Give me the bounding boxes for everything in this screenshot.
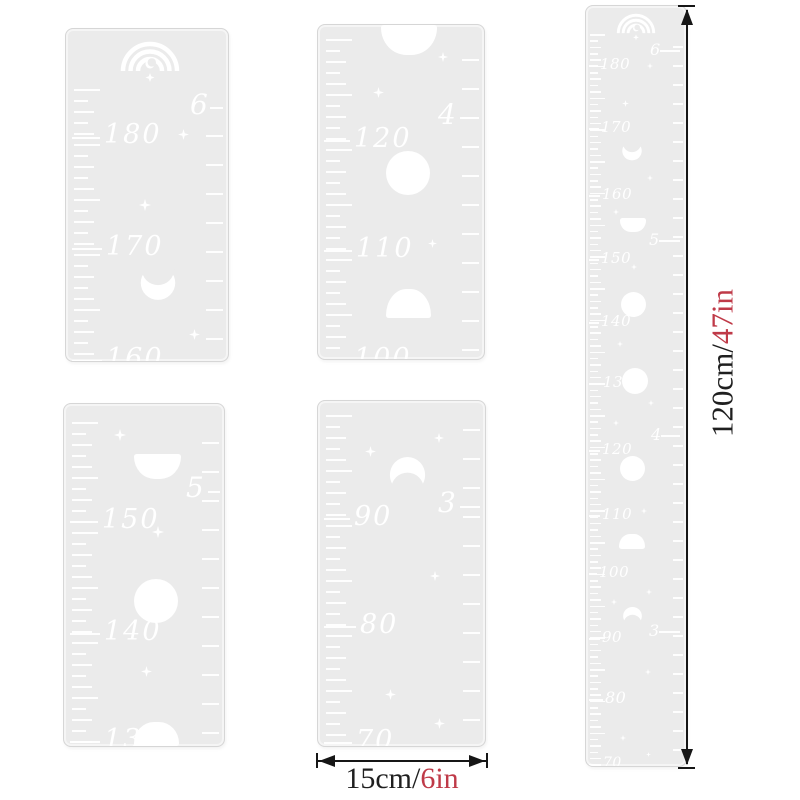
tick-mark	[202, 587, 219, 589]
tick-mark	[74, 309, 100, 311]
tick-mark	[206, 193, 223, 195]
tick-mark	[74, 199, 100, 201]
tick-mark	[590, 263, 598, 265]
cm-label: 180	[104, 121, 162, 148]
tick-mark	[74, 144, 100, 146]
tick-mark	[202, 442, 219, 444]
ruler-mark-line	[70, 521, 98, 523]
tick-mark	[673, 217, 683, 219]
tick-mark	[326, 459, 346, 461]
tick-mark	[590, 586, 601, 588]
tick-mark	[462, 233, 479, 235]
tick-mark	[326, 734, 346, 736]
tick-mark	[590, 218, 601, 220]
tick-mark	[590, 733, 605, 735]
tick-mark	[673, 502, 683, 504]
tick-mark	[326, 193, 346, 195]
tick-mark	[590, 707, 598, 709]
tick-mark	[590, 396, 601, 398]
crescent-moon-icon	[620, 607, 645, 625]
tick-mark	[590, 555, 601, 557]
tick-mark	[72, 587, 98, 589]
tick-mark	[462, 349, 479, 351]
tick-mark	[326, 591, 340, 593]
ruler-mark-line	[589, 515, 600, 517]
tick-mark	[72, 510, 86, 512]
tick-mark	[326, 314, 352, 316]
height-dimension-top-bar	[678, 5, 695, 7]
cm-label: 120	[602, 442, 632, 457]
tick-mark	[326, 237, 340, 239]
tick-mark	[590, 364, 601, 366]
star-icon	[620, 735, 626, 741]
star-icon	[114, 429, 126, 441]
full-moon-icon	[620, 456, 645, 481]
tick-mark	[326, 569, 346, 571]
star-icon	[613, 420, 619, 426]
tick-mark	[326, 226, 346, 228]
tick-mark	[326, 127, 340, 129]
ruler-mark-line	[660, 50, 680, 52]
tick-mark	[590, 599, 601, 601]
star-icon	[430, 571, 440, 581]
tick-mark	[463, 429, 480, 431]
tick-mark	[202, 732, 219, 734]
tick-mark	[463, 574, 480, 576]
tick-mark	[72, 664, 92, 666]
tick-mark	[673, 369, 683, 371]
star-icon	[178, 129, 189, 140]
crescent-moon-icon	[384, 457, 431, 493]
tick-mark	[326, 437, 346, 439]
tick-mark	[590, 682, 601, 684]
tick-mark	[72, 609, 92, 611]
tick-mark	[326, 415, 352, 417]
arrow-up-icon	[681, 9, 693, 25]
tick-mark	[590, 313, 601, 315]
half-moon-icon	[619, 534, 645, 549]
tick-mark	[326, 426, 340, 428]
tick-mark	[590, 358, 598, 360]
tick-mark	[590, 479, 605, 481]
tick-mark	[326, 602, 346, 604]
ruler-mark-line	[589, 195, 600, 197]
cm-label: 100	[599, 565, 629, 580]
tick-mark	[74, 320, 88, 322]
tick-mark	[326, 149, 352, 151]
tick-mark	[74, 331, 94, 333]
tick-mark	[74, 166, 94, 168]
tick-mark	[462, 320, 479, 322]
tick-mark	[590, 47, 601, 49]
tick-mark	[673, 616, 683, 618]
tick-mark	[74, 276, 94, 278]
tick-mark	[74, 232, 88, 234]
tick-mark	[202, 645, 219, 647]
star-icon	[648, 400, 654, 406]
tick-mark	[590, 339, 598, 341]
tick-mark	[673, 464, 683, 466]
tick-mark	[326, 514, 346, 516]
tick-mark	[590, 288, 605, 290]
arrow-right-icon	[469, 755, 485, 767]
tick-mark	[202, 674, 219, 676]
tick-mark	[74, 122, 88, 124]
tick-mark	[673, 312, 683, 314]
tick-mark	[326, 303, 346, 305]
star-icon	[385, 689, 396, 700]
height-in-value: 47in	[705, 289, 740, 344]
cm-label: 170	[601, 120, 631, 135]
tick-mark	[673, 141, 683, 143]
ruler-mark-line	[589, 573, 597, 575]
star-icon	[373, 87, 384, 98]
tick-mark	[590, 225, 605, 227]
tick-mark	[590, 301, 601, 303]
tick-mark	[673, 578, 683, 580]
tick-mark	[326, 679, 346, 681]
tick-mark	[590, 104, 598, 106]
segment-180-160: 6180170 160	[65, 28, 229, 362]
tick-mark	[326, 61, 346, 63]
ruler-mark-line	[324, 250, 352, 252]
tick-mark	[590, 294, 598, 296]
tick-mark	[72, 675, 86, 677]
cm-label: 110	[602, 507, 632, 522]
tick-mark	[673, 730, 683, 732]
tick-mark	[326, 580, 352, 582]
tick-mark	[202, 703, 219, 705]
tick-mark	[673, 293, 683, 295]
foot-marker-label: 6	[190, 91, 210, 119]
tick-mark	[590, 237, 601, 239]
segment-150-130: 5150140130	[63, 403, 225, 747]
ruler-mark-line	[589, 699, 603, 701]
tick-mark	[326, 116, 346, 118]
tick-mark	[590, 142, 601, 144]
tick-mark	[590, 269, 601, 271]
star-icon	[139, 199, 151, 211]
tick-mark	[326, 547, 346, 549]
tick-mark	[590, 618, 601, 620]
height-dimension-line	[686, 10, 688, 764]
ruler-mark-line	[208, 491, 220, 493]
tick-mark	[206, 222, 223, 224]
tick-mark	[590, 644, 598, 646]
ruler-mark-line	[324, 742, 352, 744]
tick-mark	[326, 701, 340, 703]
tick-mark	[590, 123, 601, 125]
cm-label: 180	[600, 57, 630, 72]
tick-mark	[72, 422, 98, 424]
tick-mark	[202, 558, 219, 560]
tick-mark	[590, 186, 601, 188]
tick-mark	[72, 697, 98, 699]
tick-mark	[590, 34, 605, 36]
tick-mark	[72, 554, 92, 556]
tick-mark	[673, 331, 683, 333]
tick-mark	[326, 481, 340, 483]
ruler-mark-line	[589, 764, 601, 766]
tick-mark	[590, 726, 601, 728]
tick-mark	[72, 477, 98, 479]
tick-mark	[326, 536, 340, 538]
tick-mark	[72, 642, 98, 644]
tick-mark	[673, 255, 683, 257]
tick-mark	[206, 135, 223, 137]
cm-label: 160	[106, 345, 164, 362]
tick-mark	[326, 270, 340, 272]
tick-mark	[590, 167, 598, 169]
tick-mark	[74, 188, 94, 190]
tick-mark	[590, 155, 601, 157]
ruler-mark-line	[589, 322, 599, 324]
ruler-mark-line	[72, 360, 102, 362]
tick-mark	[326, 492, 346, 494]
tick-mark	[590, 205, 601, 207]
tick-mark	[590, 421, 598, 423]
tick-mark	[590, 713, 601, 715]
full-moon-icon	[386, 151, 430, 195]
tick-mark	[326, 50, 340, 52]
tick-mark	[590, 523, 601, 525]
tick-mark	[463, 458, 480, 460]
tick-mark	[326, 448, 340, 450]
ruler-mark-line	[589, 450, 600, 452]
arrow-left-icon	[319, 755, 335, 767]
tick-mark	[590, 536, 601, 538]
tick-mark	[590, 307, 598, 309]
tick-mark	[590, 745, 601, 747]
star-icon	[438, 52, 448, 62]
cm-label: 110	[356, 235, 414, 262]
tick-mark	[72, 466, 92, 468]
half-moon-icon	[386, 289, 431, 318]
tick-mark	[673, 46, 683, 48]
tick-mark	[673, 521, 683, 523]
tick-mark	[673, 540, 683, 542]
width-cm-value: 15cm/	[345, 762, 420, 795]
rainbow-icon	[615, 8, 657, 41]
cm-label: 140	[601, 314, 631, 329]
star-icon	[611, 599, 617, 605]
tick-mark	[673, 673, 683, 675]
tick-mark	[74, 254, 100, 256]
segment-90-70: 3908070	[317, 400, 486, 747]
cm-label: 160	[602, 187, 632, 202]
tick-mark	[590, 282, 601, 284]
tick-mark	[74, 342, 88, 344]
tick-mark	[326, 292, 340, 294]
tick-mark	[462, 175, 479, 177]
tick-mark	[590, 466, 598, 468]
tick-mark	[74, 298, 94, 300]
tick-mark	[326, 94, 352, 96]
tick-mark	[590, 752, 598, 754]
ruler-mark-line	[324, 140, 350, 142]
tick-mark	[326, 72, 340, 74]
tick-mark	[673, 274, 683, 276]
tick-mark	[72, 444, 92, 446]
tick-mark	[590, 371, 598, 373]
tick-mark	[590, 694, 601, 696]
tick-mark	[590, 453, 598, 455]
tick-mark	[326, 613, 340, 615]
tick-mark	[590, 675, 598, 677]
tick-mark	[463, 719, 480, 721]
tick-mark	[326, 105, 340, 107]
tick-mark	[590, 212, 598, 214]
tick-mark	[72, 455, 86, 457]
tick-mark	[462, 146, 479, 148]
tick-mark	[590, 625, 598, 627]
tick-mark	[72, 686, 92, 688]
star-icon	[365, 446, 376, 457]
tick-mark	[326, 39, 352, 41]
star-icon	[434, 718, 445, 729]
tick-mark	[72, 433, 86, 435]
tick-mark	[590, 440, 601, 442]
cm-label: 150	[601, 251, 631, 266]
tick-mark	[72, 576, 92, 578]
tick-mark	[326, 204, 352, 206]
tick-mark	[72, 598, 86, 600]
tick-mark	[590, 491, 601, 493]
tick-mark	[326, 646, 340, 648]
tick-mark	[74, 111, 94, 113]
cm-label: 90	[602, 630, 622, 645]
tick-mark	[72, 719, 92, 721]
tick-mark	[590, 231, 598, 233]
tick-mark	[590, 110, 601, 112]
tick-mark	[673, 179, 683, 181]
tick-mark	[590, 199, 598, 201]
tick-mark	[673, 597, 683, 599]
full-ruler-120cm: 6180170 16051501401304120110100 3908070	[585, 5, 687, 767]
tick-mark	[590, 669, 605, 671]
cm-label: 120	[354, 125, 412, 152]
ruler-mark-line	[589, 638, 600, 640]
ruler-mark-line	[589, 259, 599, 261]
arrow-down-icon	[681, 749, 693, 765]
tick-mark	[590, 377, 601, 379]
tick-mark	[590, 40, 598, 42]
star-icon	[622, 100, 629, 107]
tick-mark	[326, 83, 346, 85]
tick-mark	[74, 265, 88, 267]
tick-mark	[590, 148, 598, 150]
tick-mark	[462, 291, 479, 293]
height-dimension-bottom-bar	[678, 767, 695, 769]
tick-mark	[590, 548, 598, 550]
tick-mark	[74, 210, 88, 212]
tick-mark	[590, 250, 601, 252]
tick-mark	[72, 488, 86, 490]
tick-mark	[202, 616, 219, 618]
height-cm-value: 120cm/	[705, 344, 740, 437]
tick-mark	[673, 350, 683, 352]
tick-mark	[590, 275, 598, 277]
full-moon-icon	[622, 368, 648, 394]
cm-label: 70	[603, 756, 622, 767]
tick-mark	[326, 325, 340, 327]
cm-label: 150	[102, 506, 160, 533]
tick-mark	[590, 656, 598, 658]
tick-mark	[673, 692, 683, 694]
tick-mark	[673, 445, 683, 447]
star-icon	[647, 63, 653, 69]
tick-mark	[74, 100, 88, 102]
tick-mark	[463, 661, 480, 663]
tick-mark	[74, 243, 94, 245]
tick-mark	[463, 516, 480, 518]
half-moon-icon	[381, 25, 437, 55]
cm-label: 140	[104, 618, 162, 645]
ruler-mark-line	[589, 383, 601, 385]
ruler-mark-line	[210, 107, 223, 109]
ruler-mark-line	[659, 631, 680, 633]
foot-marker-label: 3	[438, 489, 458, 517]
tick-mark	[590, 612, 598, 614]
tick-mark	[463, 632, 480, 634]
star-icon	[647, 175, 653, 181]
width-dimension-left-bar	[316, 753, 318, 768]
star-icon	[141, 666, 152, 677]
tick-mark	[72, 708, 86, 710]
tick-mark	[326, 281, 346, 283]
tick-mark	[72, 565, 86, 567]
tick-mark	[326, 160, 340, 162]
tick-mark	[590, 78, 601, 80]
tick-mark	[590, 352, 605, 354]
crescent-moon-icon	[619, 142, 645, 161]
tick-mark	[590, 390, 598, 392]
tick-mark	[326, 657, 346, 659]
ruler-mark-line	[72, 137, 100, 139]
ruler-mark-line	[70, 633, 100, 635]
tick-mark	[74, 287, 88, 289]
cm-label: 80	[605, 690, 626, 706]
tick-mark	[72, 532, 98, 534]
cm-label: 70	[356, 727, 394, 747]
tick-mark	[590, 244, 598, 246]
width-dimension-right-bar	[486, 753, 488, 768]
tick-mark	[463, 603, 480, 605]
half-moon-icon	[134, 722, 179, 746]
star-icon	[613, 209, 619, 215]
star-icon	[646, 752, 651, 757]
ruler-mark-line	[324, 518, 350, 520]
tick-mark	[72, 620, 86, 622]
tick-mark	[590, 758, 601, 760]
tick-mark	[326, 503, 340, 505]
tick-mark	[74, 221, 94, 223]
tick-mark	[326, 635, 352, 637]
tick-mark	[462, 88, 479, 90]
tick-mark	[590, 180, 598, 182]
tick-mark	[590, 650, 601, 652]
tick-mark	[590, 739, 598, 741]
tick-mark	[590, 409, 601, 411]
tick-mark	[673, 160, 683, 162]
tick-mark	[206, 280, 223, 282]
tick-mark	[590, 332, 601, 334]
tick-mark	[590, 161, 605, 163]
star-icon	[189, 329, 200, 340]
half-moon-icon	[620, 218, 646, 232]
tick-mark	[462, 204, 479, 206]
tick-mark	[590, 85, 598, 87]
